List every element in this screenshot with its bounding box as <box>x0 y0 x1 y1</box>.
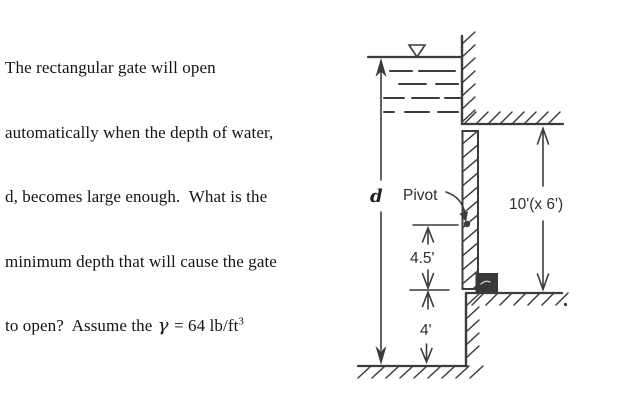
pivot-dot <box>464 221 470 227</box>
dim45-down-arrow-icon <box>423 270 434 288</box>
lower-ledge <box>466 293 568 306</box>
ink-speck <box>564 303 567 306</box>
water-surface-marker-icon <box>409 45 425 57</box>
depth-label: d <box>370 186 383 207</box>
water-dashes <box>384 71 460 112</box>
dim4-down-arrow-icon <box>421 344 432 362</box>
upper-ledge-hatching <box>464 112 560 124</box>
dim10-down-arrow-icon <box>538 221 549 290</box>
gate-size-label: 10'(x 6') <box>509 196 563 213</box>
pivot-offset-dimension: 4.5' <box>410 225 458 290</box>
dim10-up-arrow-icon <box>538 129 549 187</box>
water-region <box>368 45 462 112</box>
pivot-callout: Pivot <box>403 187 468 222</box>
depth-dimension: d <box>370 58 387 365</box>
dim4-label: 4' <box>420 322 432 339</box>
upper-wall <box>462 32 475 124</box>
dim4-up-arrow-icon <box>423 292 434 309</box>
upper-wall-hatching <box>462 32 475 122</box>
pivot-label: Pivot <box>403 187 438 204</box>
dim45-up-arrow-icon <box>423 228 434 244</box>
lower-ledge-hatching <box>472 293 568 305</box>
dim45-label: 4.5' <box>410 250 435 267</box>
stop-block <box>476 273 499 293</box>
bottom-gap-dimension: 4' <box>420 292 434 362</box>
floor <box>358 366 483 378</box>
gate-size-dimension: 10'(x 6') <box>509 129 563 290</box>
floor-hatching <box>358 366 483 378</box>
gate-schematic: Pivot <box>0 0 618 415</box>
page: The rectangular gate will open automatic… <box>0 0 618 415</box>
upper-ledge <box>462 112 563 124</box>
gate-stop <box>476 273 499 293</box>
